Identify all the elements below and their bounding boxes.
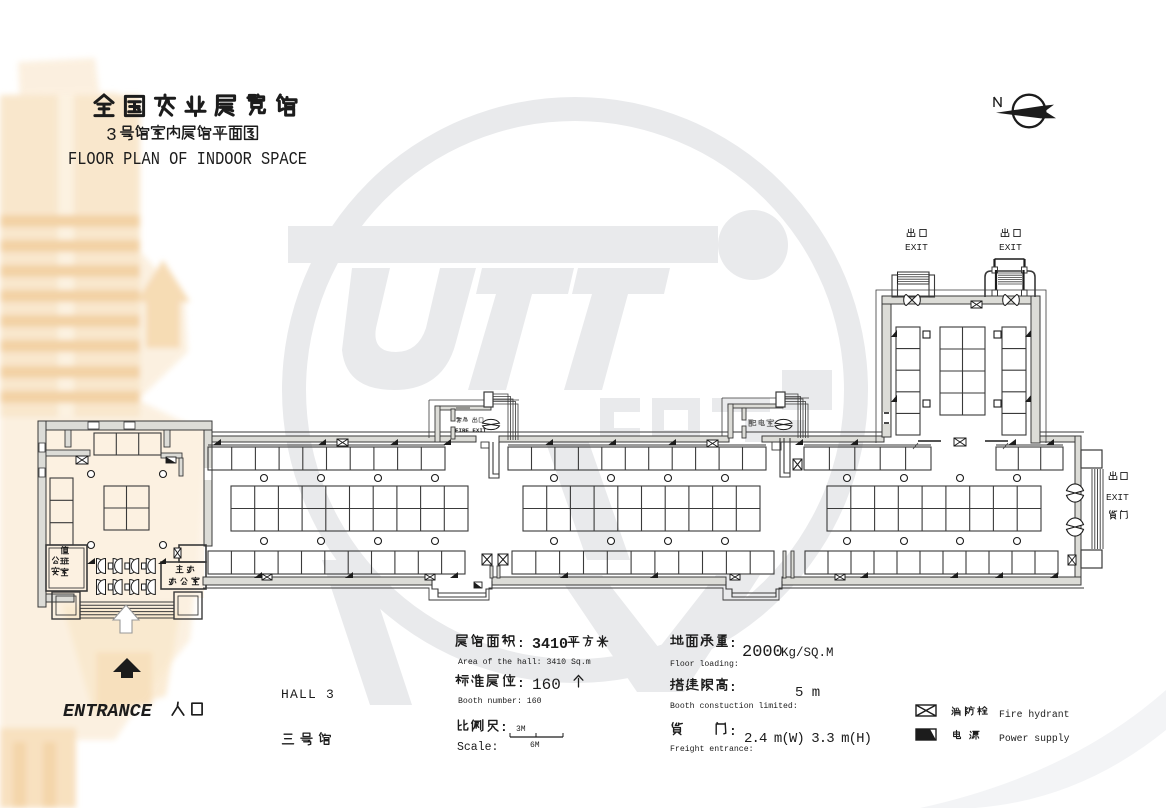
svg-text:EXIT: EXIT	[1106, 492, 1129, 503]
svg-text:HALL 3: HALL 3	[281, 687, 335, 702]
svg-text::: :	[517, 676, 525, 691]
svg-text:EXIT: EXIT	[999, 242, 1022, 253]
svg-text:2.4 m(W) 3.3 m(H): 2.4 m(W) 3.3 m(H)	[744, 731, 872, 747]
svg-text:3410: 3410	[532, 636, 568, 653]
svg-text:Booth number: 160: Booth number: 160	[458, 696, 542, 706]
svg-text:FLOOR PLAN OF INDOOR SPACE: FLOOR PLAN OF INDOOR SPACE	[68, 150, 307, 170]
svg-text:EXIT: EXIT	[905, 242, 928, 253]
svg-text::: :	[729, 680, 737, 695]
svg-text::: :	[729, 724, 737, 739]
svg-text:160: 160	[532, 676, 561, 694]
svg-text:2000: 2000	[742, 643, 783, 662]
svg-text:Scale:: Scale:	[457, 741, 498, 754]
svg-text::: :	[500, 720, 508, 735]
svg-text:Power supply: Power supply	[999, 733, 1070, 744]
svg-text::: :	[729, 636, 737, 651]
svg-text:3M: 3M	[516, 725, 526, 734]
svg-text:Kg/SQ.M: Kg/SQ.M	[781, 646, 834, 660]
svg-text:5 m: 5 m	[795, 685, 820, 701]
svg-text:3: 3	[106, 126, 117, 146]
svg-text:ENTRANCE: ENTRANCE	[63, 701, 153, 722]
svg-text:Floor loading:: Floor loading:	[670, 659, 739, 669]
svg-text:Area of the hall: 3410 Sq.m: Area of the hall: 3410 Sq.m	[458, 657, 591, 667]
svg-text:Freight entrance:: Freight entrance:	[670, 744, 754, 754]
svg-text:FIRE EXIT: FIRE EXIT	[455, 427, 487, 434]
svg-text:Booth constuction limited:: Booth constuction limited:	[670, 701, 798, 711]
svg-text::: :	[517, 636, 525, 651]
svg-text:6M: 6M	[530, 741, 540, 750]
svg-text:Fire hydrant: Fire hydrant	[999, 709, 1070, 720]
